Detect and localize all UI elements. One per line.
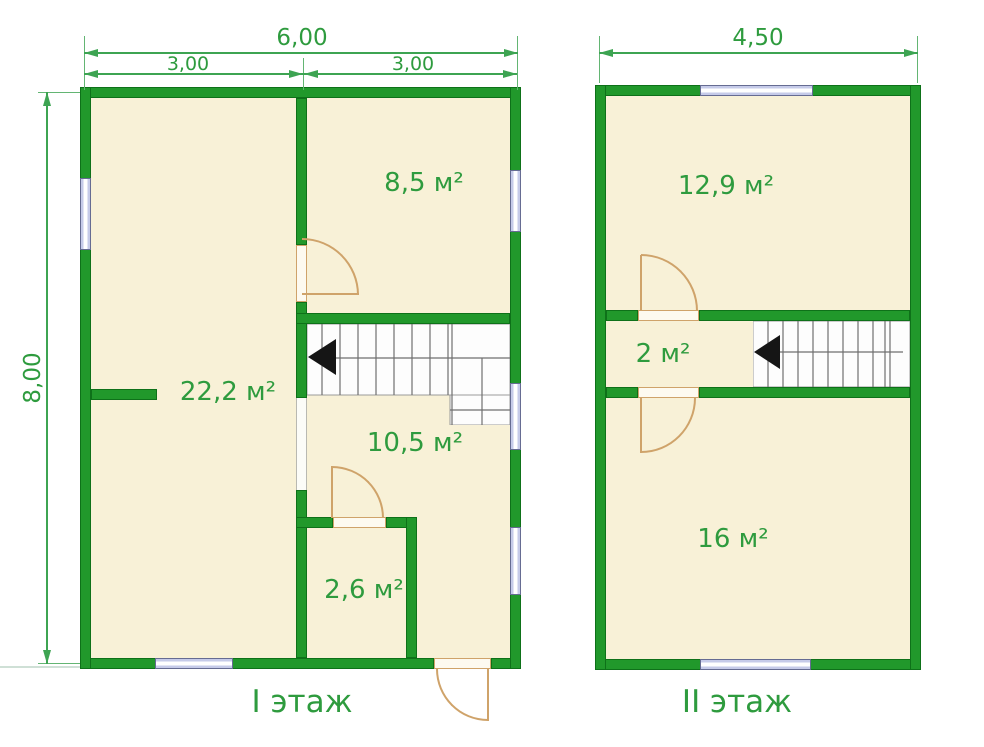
dim-label-3-00-left: 3,00: [130, 53, 246, 75]
dim-arrowhead: [504, 49, 518, 57]
floor1-title: I этаж: [222, 684, 382, 720]
floor-plan-canvas: 8,5 м² 22,2 м² 10,5 м² 2,6 м² I этаж 6,0…: [0, 0, 984, 747]
dim-arrowhead: [43, 650, 51, 664]
entrance-door-opening: [434, 658, 491, 669]
dim-arrowhead: [599, 49, 613, 57]
dim-label-4-50: 4,50: [696, 25, 820, 51]
window-floor1-bottom: [155, 658, 233, 669]
dim-arrowhead: [84, 70, 98, 78]
dim-arrowhead: [289, 70, 303, 78]
window-floor2-bottom: [700, 659, 811, 670]
window-floor1-right-middle: [510, 383, 521, 450]
staircase-floor1: [307, 324, 510, 425]
room-label-2: 2 м²: [593, 339, 733, 369]
floor1-wall-stub-left: [91, 389, 157, 400]
room-label-10-5: 10,5 м²: [345, 428, 485, 458]
floor2-title: II этаж: [657, 684, 817, 720]
extension-line: [917, 36, 918, 83]
dim-line-8-00: [46, 92, 48, 664]
room-label-2-6: 2,6 м²: [294, 575, 434, 605]
dim-arrowhead: [84, 49, 98, 57]
room-label-12-9: 12,9 м²: [656, 171, 796, 201]
dim-label-6-00: 6,00: [240, 25, 364, 51]
floor1-room26-top-wall-left: [296, 517, 333, 528]
door-opening-room16: [638, 387, 699, 398]
floor2-partition-lower-right: [699, 387, 910, 398]
floor1-partition-vertical-upper: [296, 98, 307, 245]
baseline-artifact: [0, 666, 80, 668]
window-floor1-left: [80, 178, 91, 250]
extension-line: [84, 36, 85, 90]
door-opening-room26: [333, 517, 386, 528]
dim-label-8-00: 8,00: [20, 348, 46, 408]
floor2-partition-lower-left: [606, 387, 638, 398]
entrance-door-arc: [436, 669, 488, 721]
floor1-wall-top: [80, 87, 521, 98]
dim-label-3-00-right: 3,00: [355, 53, 471, 75]
dim-arrowhead: [304, 70, 318, 78]
floor2-wall-right: [910, 85, 921, 670]
door-opening-room129: [638, 310, 699, 321]
dim-arrowhead: [43, 92, 51, 106]
window-floor1-right-top: [510, 170, 521, 232]
room-label-22-2: 22,2 м²: [158, 377, 298, 407]
extension-line: [517, 36, 518, 90]
floor2-wall-left: [595, 85, 606, 670]
window-floor1-right-bottom: [510, 527, 521, 595]
floor2-partition-upper-right: [699, 310, 910, 321]
floor2-partition-upper-left: [606, 310, 638, 321]
dim-arrowhead: [904, 49, 918, 57]
floor1-wall-left: [80, 87, 91, 669]
open-passage: [296, 397, 307, 491]
floor1-partition-vertical-lower: [296, 490, 307, 658]
window-floor2-top: [700, 85, 813, 96]
room-label-8-5: 8,5 м²: [354, 168, 494, 198]
extension-line: [599, 36, 600, 83]
room-label-16: 16 м²: [663, 524, 803, 554]
floor1-wall-bottom-left: [80, 658, 434, 669]
dim-arrowhead: [503, 70, 517, 78]
staircase-floor2: [753, 321, 910, 387]
floor1-stair-top-wall: [296, 313, 510, 324]
dim-line-4-50: [599, 52, 918, 54]
